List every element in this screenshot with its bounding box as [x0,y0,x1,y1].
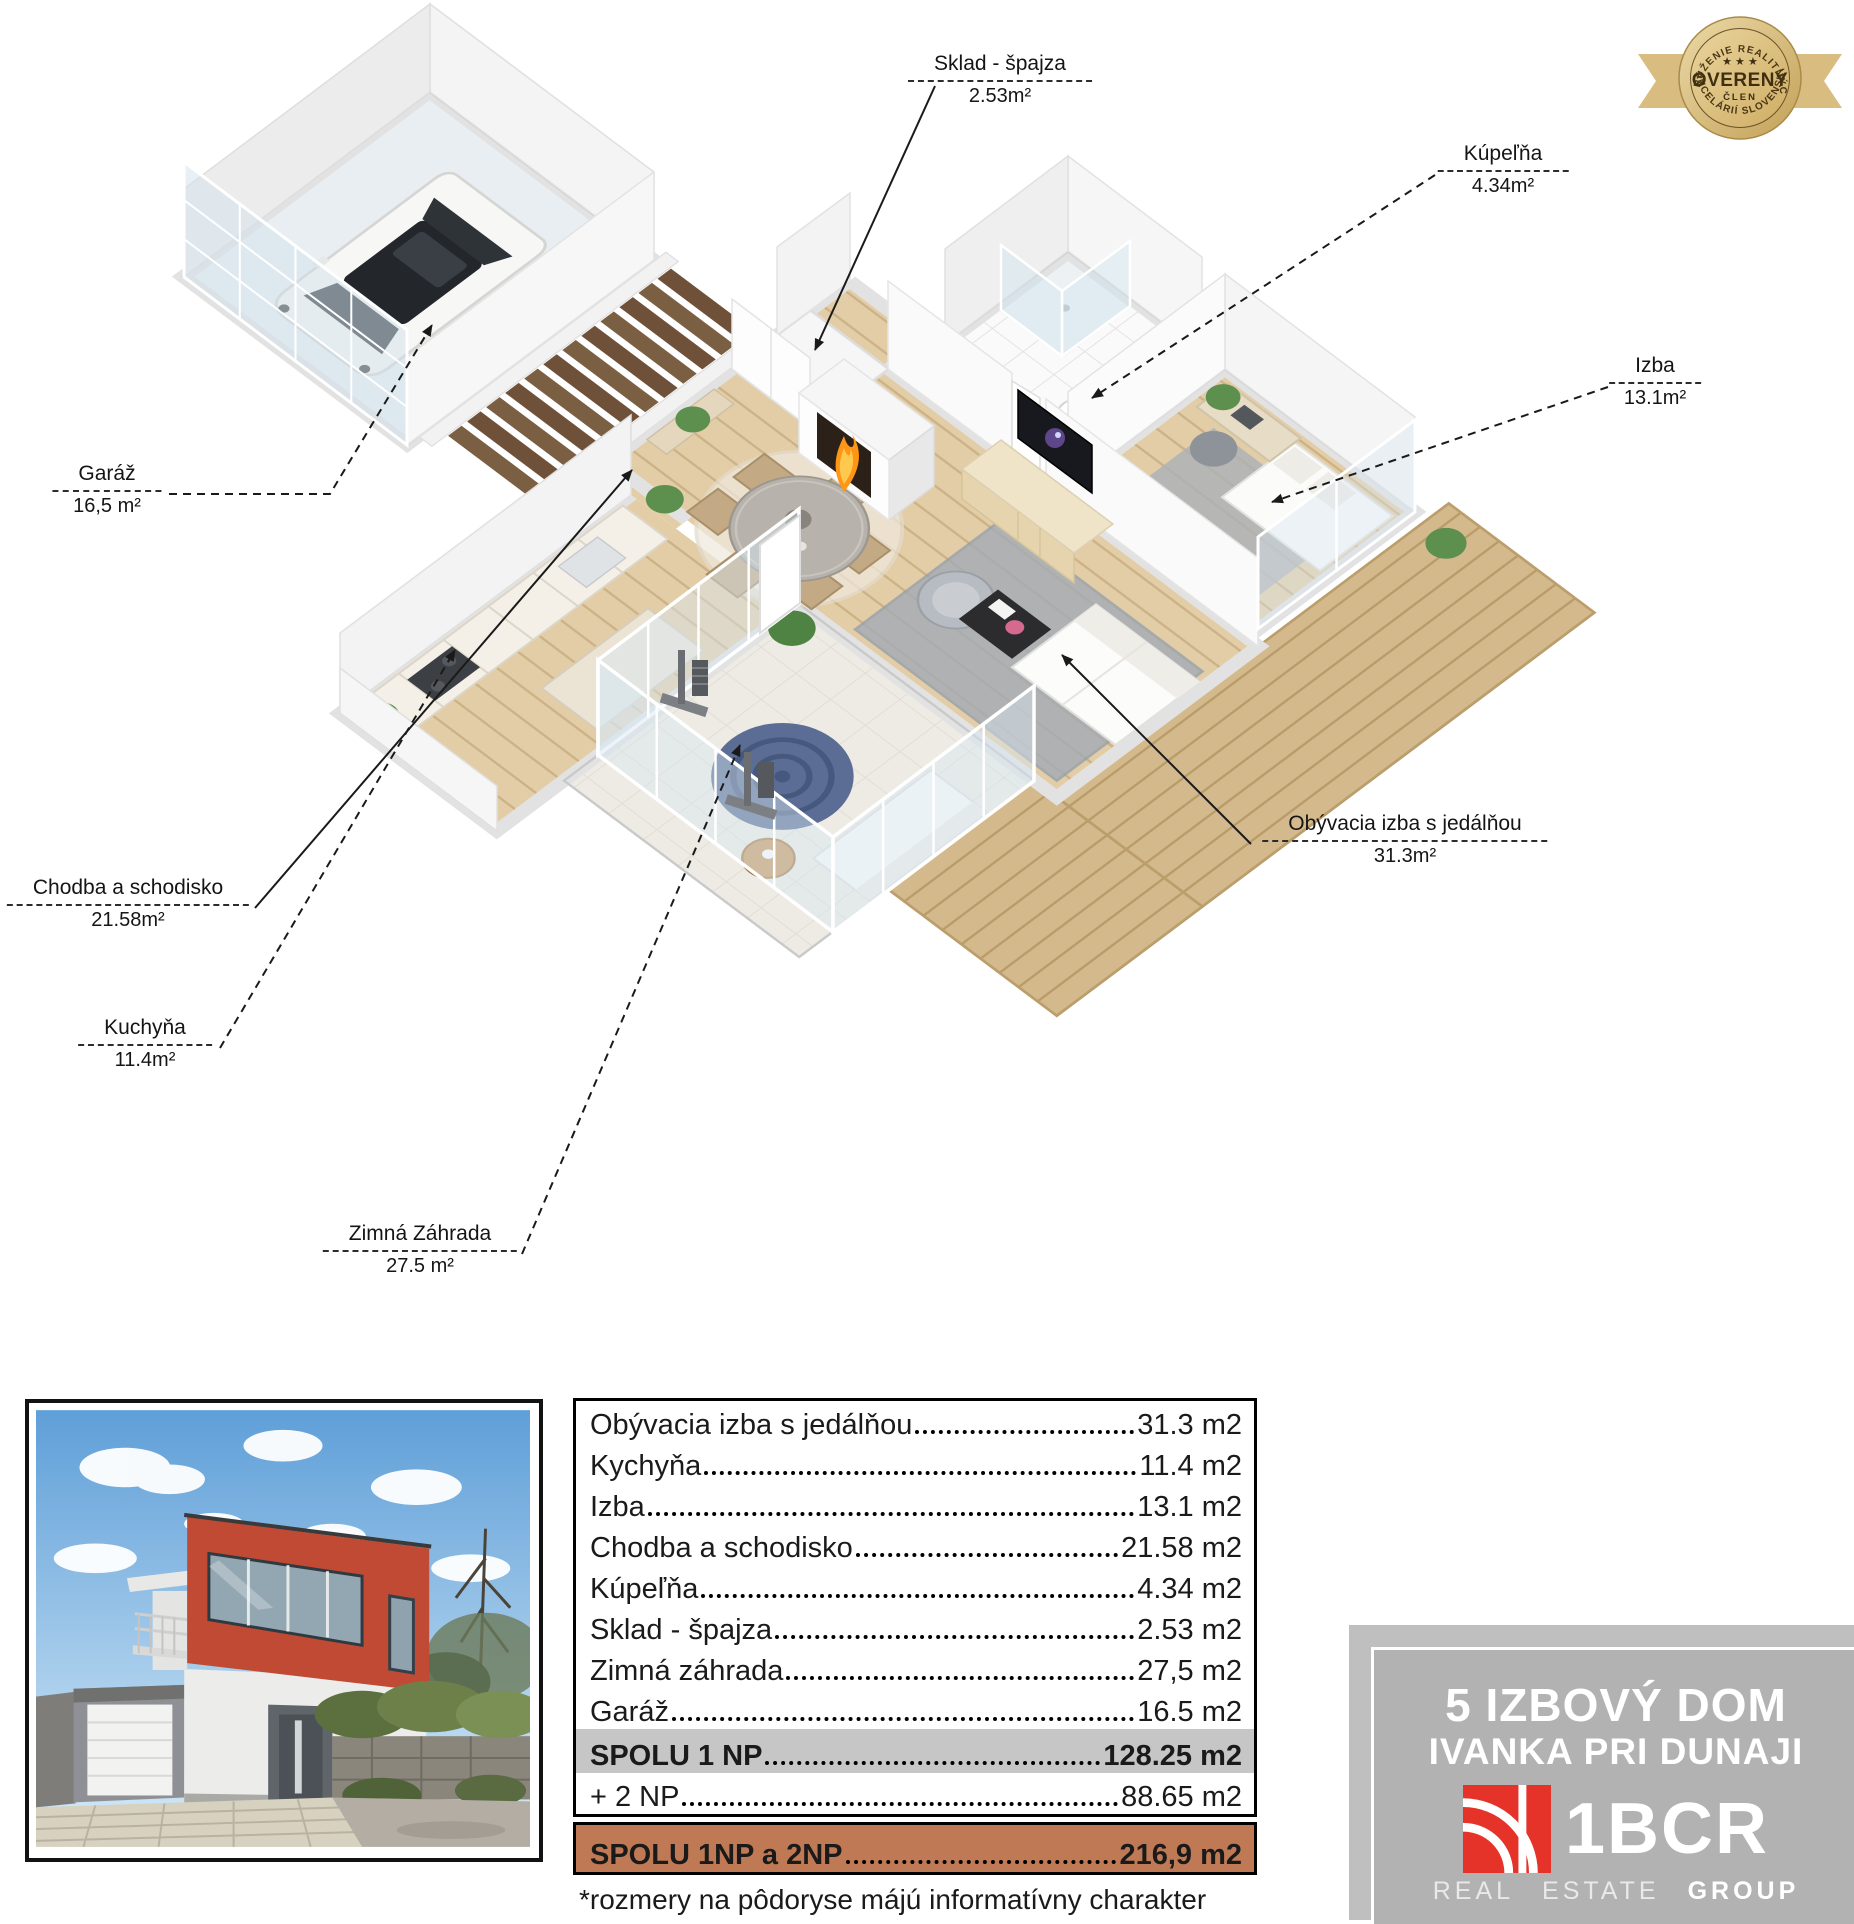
listing-location: IVANKA PRI DUNAJI [1374,1731,1854,1773]
leader-dots [701,1594,1134,1598]
hedge [315,1681,530,1813]
row-label: SPOLU 1NP a 2NP [590,1839,843,1872]
row-value: 88.65 m2 [1121,1781,1242,1814]
leader-dots [682,1802,1118,1806]
row-value: 128.25 m2 [1103,1740,1242,1773]
row-label: Sklad - špajza [590,1614,772,1647]
house-upper-floor [184,1515,431,1692]
table-row: Obývacia izba s jedálňou31.3 m2 [576,1401,1254,1442]
branding-inner: 5 IZBOVÝ DOM IVANKA PRI DUNAJI 1BCR REAL… [1371,1647,1854,1924]
row-value: 4.34 m2 [1137,1573,1242,1606]
table-box: Obývacia izba s jedálňou31.3 m2 Kychyňa1… [573,1398,1257,1817]
leader-dots [856,1553,1118,1557]
row-label: Garáž [590,1696,669,1729]
row-value: 11.4 m2 [1139,1450,1242,1483]
row-label: + 2 NP [590,1781,679,1814]
garage-photo [74,1685,185,1803]
badge-subtitle: ČLEN [1723,91,1757,103]
row-label: Kychyňa [590,1450,701,1483]
row-label: Obývacia izba s jedálňou [590,1409,912,1442]
tagline-estate: ESTATE [1542,1877,1660,1905]
table-row: Chodba a schodisko21.58 m2 [576,1524,1254,1565]
tagline-group: GROUP [1688,1877,1800,1905]
table-row: Izba13.1 m2 [576,1483,1254,1524]
row-label: Zimná záhrada [590,1655,783,1688]
branding-block: 5 IZBOVÝ DOM IVANKA PRI DUNAJI 1BCR REAL… [1349,1625,1854,1920]
house-photo [25,1399,543,1862]
badge-stars: ★ ★ ★ [1722,56,1758,68]
driveway [36,1797,530,1846]
stone-wall-left [36,1692,76,1808]
page: { "badge": { "arc_top": "ZDRUŽENIE REALI… [0,0,1854,1920]
row-value: 2.53 m2 [1137,1614,1242,1647]
row-value: 16.5 m2 [1137,1696,1242,1729]
table-row: Garáž16.5 m2 [576,1688,1254,1729]
plus-2np-row: + 2 NP88.65 m2 [576,1773,1254,1814]
leader-dots [704,1471,1136,1475]
total-all-row: SPOLU 1NP a 2NP216,9 m2 [576,1825,1254,1872]
row-label: SPOLU 1 NP [590,1740,762,1773]
leader-dots [775,1635,1134,1639]
total-all-box: SPOLU 1NP a 2NP216,9 m2 [573,1822,1257,1875]
leader-dots [786,1676,1134,1680]
row-value: 21.58 m2 [1121,1532,1242,1565]
leader-dots [765,1761,1100,1765]
agency-logo: 1BCR [1374,1785,1854,1873]
verified-member-badge: ZDRUŽENIE REALITNÝCH ★ ★ ★ OVERENÝ ČLEN … [1628,8,1852,148]
table-row: Kúpeľňa4.34 m2 [576,1565,1254,1606]
leader-dots [648,1512,1134,1516]
row-label: Izba [590,1491,645,1524]
total-1np-row: SPOLU 1 NP128.25 m2 [576,1729,1254,1773]
row-label: Chodba a schodisko [590,1532,853,1565]
listing-title: 5 IZBOVÝ DOM [1374,1680,1854,1731]
floorplan-render [0,0,1854,1390]
table-row: Zimná záhrada27,5 m2 [576,1647,1254,1688]
agency-logo-text: 1BCR [1565,1788,1769,1870]
row-value: 216,9 m2 [1119,1839,1242,1872]
row-value: 27,5 m2 [1137,1655,1242,1688]
table-row: Kychyňa11.4 m2 [576,1442,1254,1483]
1bcr-logo-icon [1463,1785,1551,1873]
tagline-real: REAL [1433,1877,1514,1905]
leader-dots [846,1860,1117,1864]
leader-dots [672,1717,1134,1721]
row-label: Kúpeľňa [590,1573,698,1606]
agency-tagline: REALESTATEGROUP [1374,1877,1854,1906]
row-value: 31.3 m2 [1137,1409,1242,1442]
table-footnote: *rozmery na pôdoryse májú informatívny c… [573,1884,1257,1916]
table-row: Sklad - špajza2.53 m2 [576,1606,1254,1647]
leader-dots [915,1430,1134,1434]
area-summary-table: Obývacia izba s jedálňou31.3 m2 Kychyňa1… [573,1398,1257,1916]
row-value: 13.1 m2 [1137,1491,1242,1524]
